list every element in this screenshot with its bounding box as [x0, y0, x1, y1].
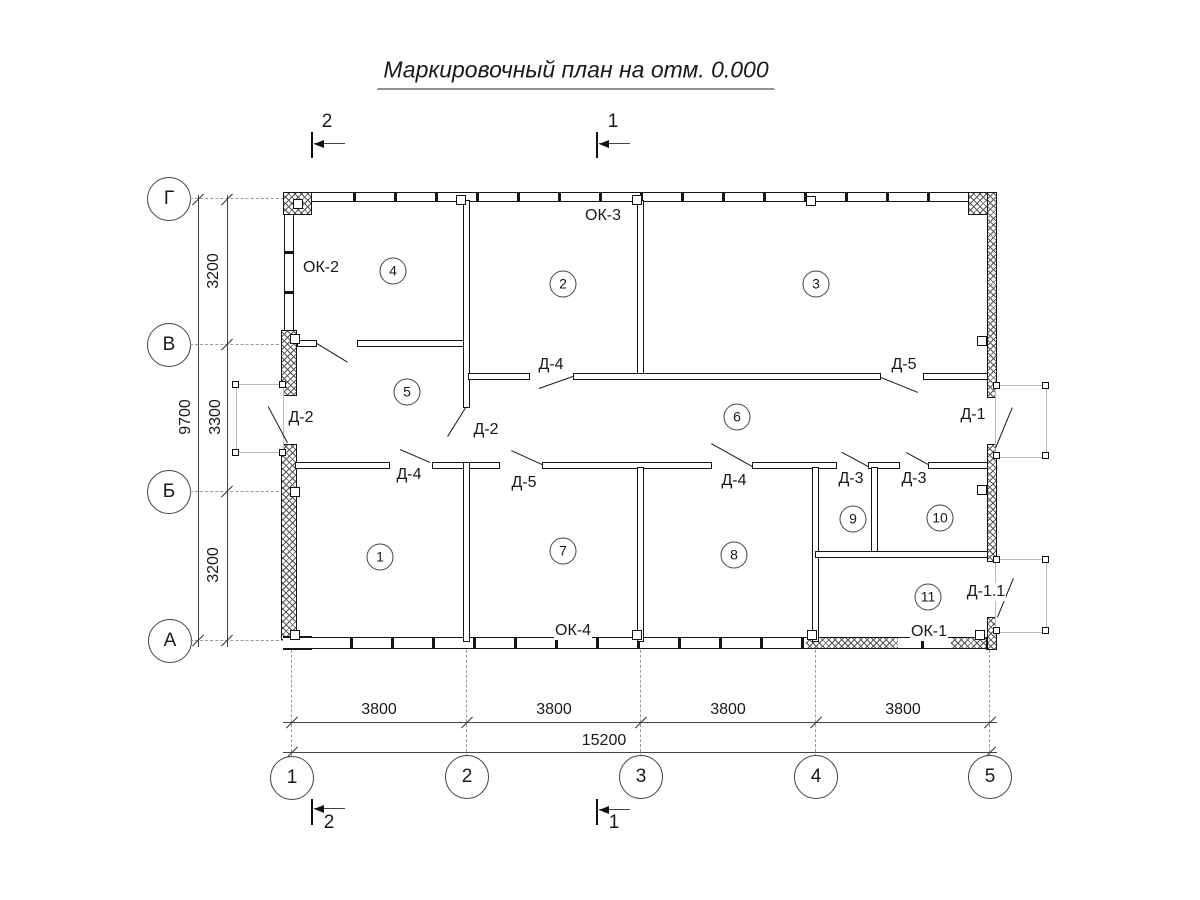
- door-label-d3-room9: Д-3: [837, 470, 864, 488]
- porch-right-upper: [995, 385, 1047, 458]
- grid-col-2: 2: [445, 755, 489, 799]
- door-leaf-d5-room3: [881, 377, 918, 393]
- grid-col-3: 3: [619, 755, 663, 799]
- centerline-row-v: [190, 344, 284, 345]
- dim-line-total-vertical: [198, 195, 199, 647]
- section-label-bottom-2: 2: [324, 812, 335, 834]
- dim-3800-1: 3800: [360, 701, 398, 719]
- dim-9700-total: 9700: [177, 399, 195, 435]
- section-arrow-icon: [314, 805, 324, 813]
- centerline-col-1: [291, 650, 292, 757]
- grid-col-1: 1: [270, 756, 314, 800]
- window-label-ok2: ОК-2: [302, 259, 340, 277]
- room-circle-4: 4: [380, 258, 407, 285]
- centerline-row-g: [190, 198, 284, 199]
- porch-post: [993, 627, 1000, 634]
- centerline-row-a: [190, 640, 284, 641]
- dim-3800-3: 3800: [709, 701, 747, 719]
- porch-post: [1042, 627, 1049, 634]
- corridor-bottom-wall-3: [542, 462, 712, 469]
- centerline-col-3: [640, 650, 641, 757]
- porch-post: [232, 449, 239, 456]
- bottom-wall-masonry-left: [806, 638, 898, 648]
- right-wall-upper: [987, 192, 997, 398]
- door-leaf-d2-corridor: [447, 407, 466, 436]
- room-circle-10: 10: [927, 505, 954, 532]
- junction-post: [977, 336, 987, 346]
- door-label-d2-entry: Д-2: [287, 409, 314, 427]
- junction-post: [456, 195, 466, 205]
- section-arrow-icon: [314, 140, 324, 148]
- centerline-col-2: [466, 650, 467, 757]
- grid-row-g: Г: [147, 177, 191, 221]
- window-label-ok3: ОК-3: [584, 207, 622, 225]
- section-cut-bar: [596, 799, 598, 825]
- door-label-d5-room7: Д-5: [510, 474, 537, 492]
- junction-post: [807, 630, 817, 640]
- porch-post: [232, 381, 239, 388]
- porch-left: [236, 384, 284, 453]
- door-label-d1: Д-1: [959, 406, 986, 424]
- section-arrow-icon: [599, 140, 609, 148]
- room-circle-6: 6: [724, 404, 751, 431]
- door-label-d5-room3: Д-5: [890, 356, 917, 374]
- room-circle-9: 9: [840, 506, 867, 533]
- room-circle-1: 1: [367, 544, 394, 571]
- junction-post: [290, 487, 300, 497]
- right-wall-middle: [987, 444, 997, 562]
- dim-line-segments-vertical: [227, 195, 228, 647]
- dim-3800-2: 3800: [535, 701, 573, 719]
- left-wall-lower: [281, 444, 297, 640]
- centerline-row-b: [190, 491, 284, 492]
- section-label-top-1: 1: [608, 111, 619, 133]
- room-circle-11: 11: [915, 584, 942, 611]
- section-label-bottom-1: 1: [609, 812, 620, 834]
- porch-post: [993, 452, 1000, 459]
- section-cut-bar: [311, 799, 313, 825]
- drawing-sheet: Маркировочный план на отм. 0.000 2 1 Г В…: [0, 0, 1200, 900]
- section-cut-bar: [311, 132, 313, 158]
- wall-room1-room7: [463, 462, 470, 642]
- door-label-d3-room10: Д-3: [900, 470, 927, 488]
- corridor-top-wall-1: [468, 373, 530, 380]
- junction-post: [290, 334, 300, 344]
- porch-post: [1042, 556, 1049, 563]
- dim-line-total-horizontal: [283, 752, 997, 753]
- wall-room9-room10: [871, 467, 878, 557]
- centerline-col-5: [989, 650, 990, 757]
- junction-post: [975, 630, 985, 640]
- door-leaf-d3-room9: [842, 452, 869, 467]
- grid-row-v: В: [147, 323, 191, 367]
- junction-post: [977, 485, 987, 495]
- window-label-ok4: ОК-4: [554, 622, 592, 640]
- door-leaf-d4-room8: [711, 443, 752, 467]
- wall-room11-top: [815, 551, 988, 558]
- door-label-d4-room8: Д-4: [720, 472, 747, 490]
- dim-3300: 3300: [207, 399, 225, 435]
- left-window-mullions: [285, 216, 293, 331]
- junction-post: [290, 630, 300, 640]
- dim-3200-upper: 3200: [205, 253, 223, 289]
- junction-post: [632, 195, 642, 205]
- wall-room2-room3: [637, 200, 644, 377]
- corridor-bottom-wall-4: [752, 462, 837, 469]
- grid-row-b: Б: [147, 470, 191, 514]
- centerline-col-4: [815, 650, 816, 757]
- door-leaf-room4-room5: [316, 343, 347, 363]
- door-leaf-d4-room2: [539, 376, 573, 389]
- dim-15200-total: 15200: [581, 732, 628, 750]
- section-cut-bar: [596, 132, 598, 158]
- dim-3800-4: 3800: [884, 701, 922, 719]
- junction-post: [632, 630, 642, 640]
- grid-row-a: А: [148, 619, 192, 663]
- window-label-ok1: ОК-1: [910, 623, 948, 641]
- wall-room4-room5: [357, 340, 464, 347]
- porch-post: [279, 449, 286, 456]
- grid-col-5: 5: [968, 755, 1012, 799]
- porch-post: [993, 556, 1000, 563]
- wall-room7-room8: [637, 467, 644, 642]
- door-leaf-d4-room1: [400, 449, 431, 463]
- section-arrow-icon: [599, 806, 609, 814]
- room-circle-8: 8: [721, 542, 748, 569]
- room-circle-3: 3: [803, 271, 830, 298]
- door-leaf-d3-room10: [906, 452, 928, 465]
- corridor-bottom-wall-6: [928, 462, 988, 469]
- junction-post: [293, 199, 303, 209]
- wall-row-v-stub: [297, 340, 317, 347]
- room-circle-2: 2: [550, 271, 577, 298]
- corridor-top-wall-2: [573, 373, 881, 380]
- door-label-d2-corridor: Д-2: [472, 421, 499, 439]
- porch-post: [1042, 382, 1049, 389]
- room-circle-7: 7: [550, 538, 577, 565]
- room-circle-5: 5: [394, 379, 421, 406]
- door-label-d4-room1: Д-4: [395, 466, 422, 484]
- corridor-top-wall-3: [923, 373, 988, 380]
- section-label-top-2: 2: [322, 111, 333, 133]
- corridor-bottom-wall-1: [295, 462, 390, 469]
- drawing-title: Маркировочный план на отм. 0.000: [377, 57, 774, 90]
- dim-3200-lower: 3200: [205, 547, 223, 583]
- porch-post: [1042, 452, 1049, 459]
- door-label-d1-1: Д-1.1: [966, 583, 1006, 601]
- junction-post: [806, 196, 816, 206]
- door-leaf-d5-room7: [511, 450, 542, 465]
- porch-post: [279, 381, 286, 388]
- porch-post: [993, 382, 1000, 389]
- grid-col-4: 4: [794, 755, 838, 799]
- door-label-d4-room2: Д-4: [537, 356, 564, 374]
